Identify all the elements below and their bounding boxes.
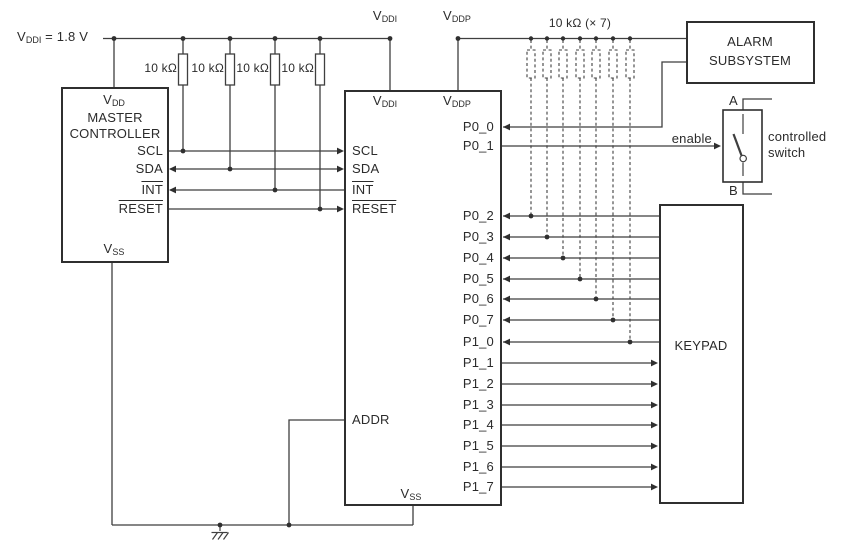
master-pin-reset: RESET <box>119 202 163 215</box>
expander-pin-p0-3: P0_3 <box>463 230 494 243</box>
dashed-pullup-value-label: 10 kΩ (× 7) <box>549 17 611 29</box>
alarm-title-line2: SUBSYSTEM <box>709 54 791 67</box>
switch-caption-line1: controlled <box>768 130 826 143</box>
expander-pin-int: INT <box>352 183 374 196</box>
expander-pin-p1-1: P1_1 <box>463 356 494 369</box>
master-vdd-label: VDD <box>103 93 125 108</box>
expander-vddp-label: VDDP <box>443 94 471 109</box>
expander-pin-p1-4: P1_4 <box>463 418 494 431</box>
vddi-rail-label: VDDI <box>373 9 397 24</box>
expander-pin-p0-4: P0_4 <box>463 251 494 264</box>
master-title-line1: MASTER <box>87 111 142 124</box>
alarm-title-line1: ALARM <box>727 35 773 48</box>
expander-pin-p1-5: P1_5 <box>463 439 494 452</box>
switch-terminal-b-label: B <box>729 184 738 197</box>
pullup-value-label: 10 kΩ <box>281 62 314 74</box>
application-schematic: VDDI = 1.8 V VDDI VDDP 10 kΩ 10 kΩ 10 kΩ… <box>0 0 843 559</box>
master-pin-int: INT <box>141 183 163 196</box>
dashed-pullup-resistors <box>527 40 634 342</box>
expander-pin-p1-3: P1_3 <box>463 398 494 411</box>
enable-signal-label: enable <box>672 132 712 145</box>
expander-pin-p0-2: P0_2 <box>463 209 494 222</box>
expander-vddi-label: VDDI <box>373 94 397 109</box>
master-title-line2: CONTROLLER <box>70 127 161 140</box>
switch-caption-line2: switch <box>768 146 805 159</box>
master-pin-sda: SDA <box>136 162 163 175</box>
expander-pin-p1-2: P1_2 <box>463 377 494 390</box>
expander-pin-p0-1: P0_1 <box>463 139 494 152</box>
keypad-block <box>660 205 743 503</box>
expander-pin-addr: ADDR <box>352 413 390 426</box>
expander-pin-p1-6: P1_6 <box>463 460 494 473</box>
expander-pin-p0-7: P0_7 <box>463 313 494 326</box>
master-pin-scl: SCL <box>137 144 163 157</box>
expander-vss-label: VSS <box>401 487 422 502</box>
schematic-wiring <box>0 0 843 559</box>
expander-pin-p0-6: P0_6 <box>463 292 494 305</box>
expander-pin-p1-0: P1_0 <box>463 335 494 348</box>
pullup-value-label: 10 kΩ <box>191 62 224 74</box>
switch-terminal-a-label: A <box>729 94 738 107</box>
keypad-title: KEYPAD <box>675 339 728 352</box>
expander-pin-sda: SDA <box>352 162 379 175</box>
expander-pin-p1-7: P1_7 <box>463 480 494 493</box>
supply-voltage-note: VDDI = 1.8 V <box>17 30 88 45</box>
expander-pin-p0-5: P0_5 <box>463 272 494 285</box>
expander-pin-scl: SCL <box>352 144 378 157</box>
pullup-value-label: 10 kΩ <box>144 62 177 74</box>
pullup-value-label: 10 kΩ <box>236 62 269 74</box>
expander-pin-p0-0: P0_0 <box>463 120 494 133</box>
expander-pin-reset: RESET <box>352 202 396 215</box>
master-vss-label: VSS <box>104 242 125 257</box>
vddp-rail-label: VDDP <box>443 9 471 24</box>
